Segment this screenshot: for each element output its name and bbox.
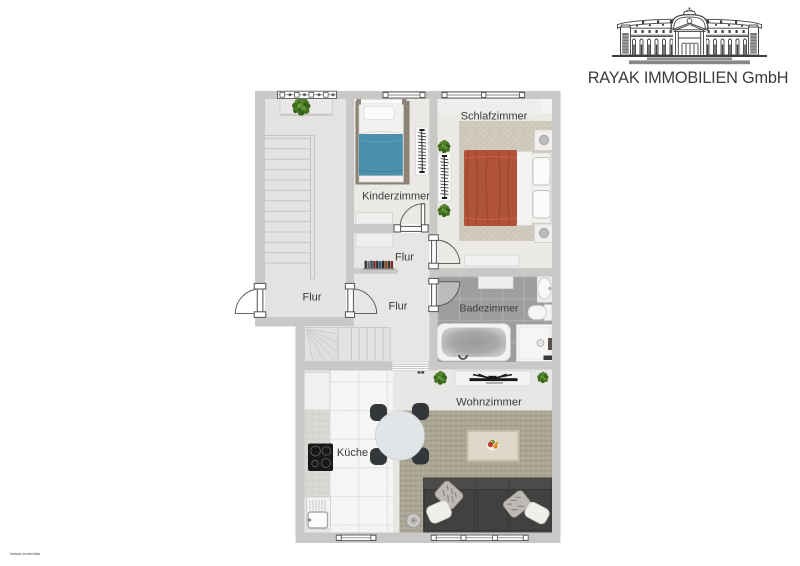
- svg-text:Küche: Küche: [337, 447, 368, 459]
- svg-text:Wohnzimmer: Wohnzimmer: [456, 397, 522, 409]
- svg-text:Grundrissplan, ohne realen Maß: Grundrissplan, ohne realen Maßstab: [10, 552, 40, 556]
- svg-text:Flur: Flur: [389, 301, 408, 313]
- svg-text:Badezimmer: Badezimmer: [460, 303, 519, 315]
- svg-text:Flur: Flur: [303, 292, 322, 304]
- svg-text:Flur: Flur: [395, 252, 414, 264]
- svg-text:Schlafzimmer: Schlafzimmer: [461, 111, 528, 123]
- svg-text:RAYAK IMMOBILIEN GmbH: RAYAK IMMOBILIEN GmbH: [588, 69, 789, 87]
- svg-text:Kinderzimmer: Kinderzimmer: [362, 191, 430, 203]
